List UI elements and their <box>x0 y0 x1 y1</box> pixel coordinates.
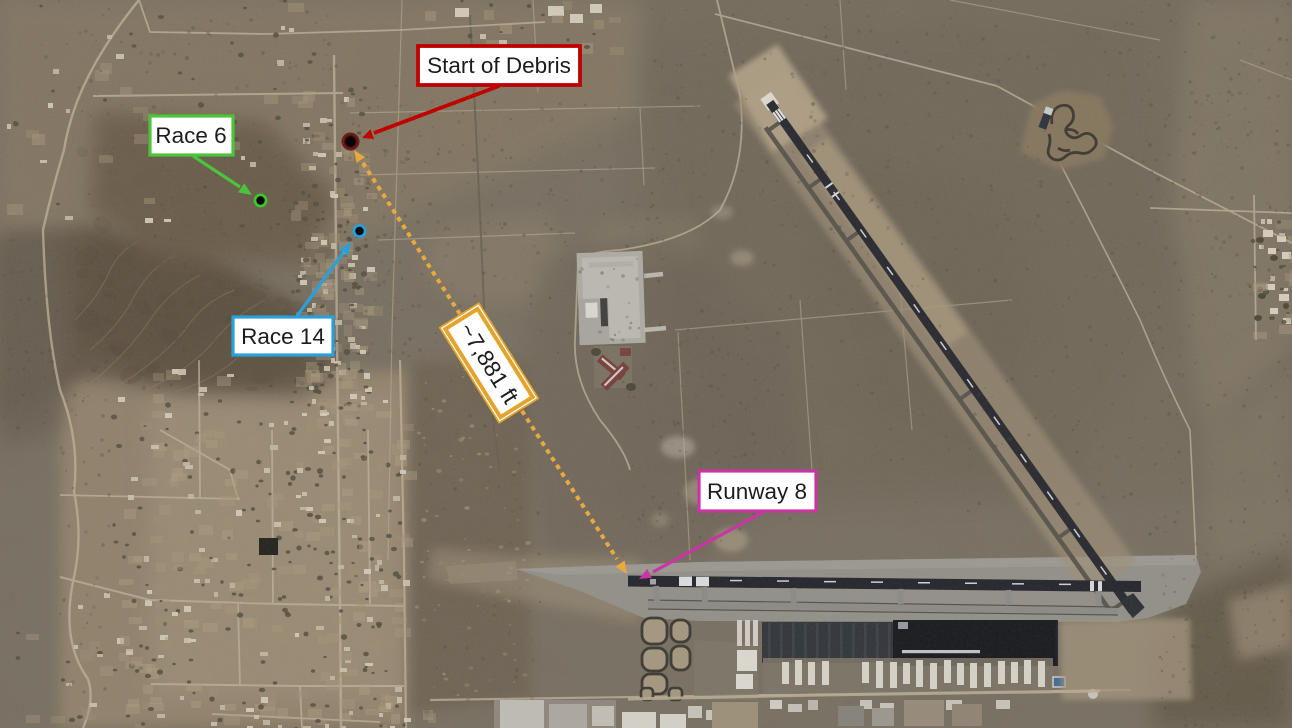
svg-text:Runway 8: Runway 8 <box>707 479 807 504</box>
svg-text:Race 14: Race 14 <box>241 324 325 349</box>
svg-text:Race 6: Race 6 <box>155 123 226 148</box>
svg-text:Start of Debris: Start of Debris <box>427 53 571 78</box>
